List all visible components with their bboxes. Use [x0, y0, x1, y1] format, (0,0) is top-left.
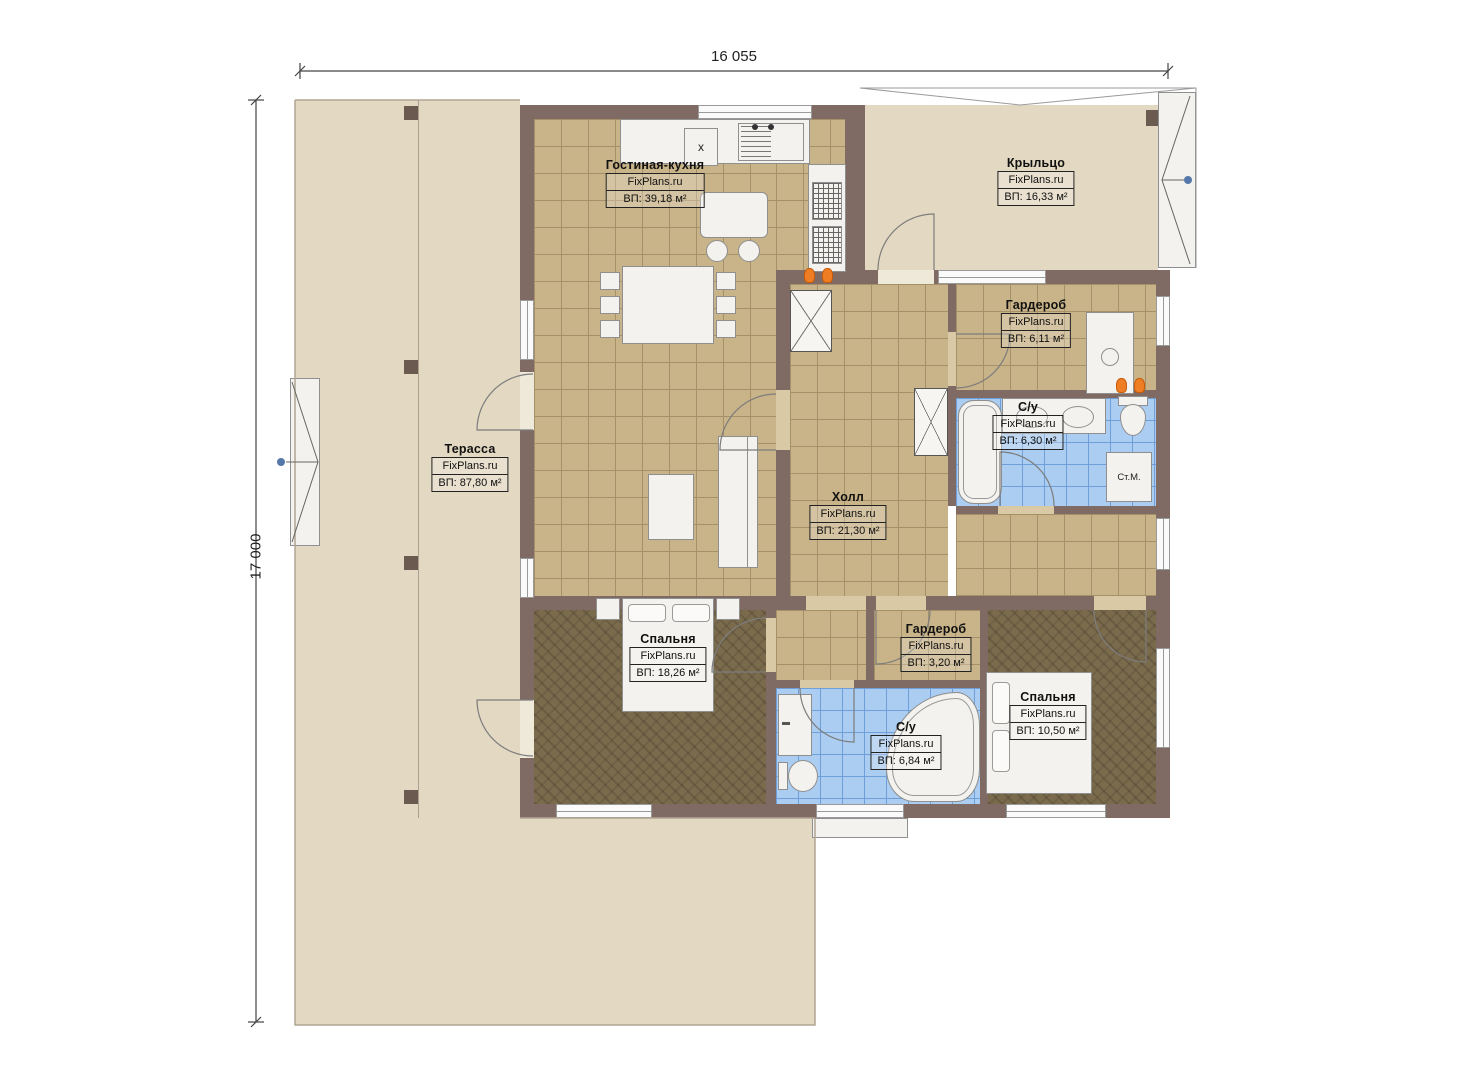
- door-arcs: [477, 214, 1146, 756]
- room-name: С/у: [870, 720, 941, 734]
- door-arc: [878, 214, 934, 270]
- room-area: ВП: 39,18 м²: [607, 191, 704, 207]
- door-arc: [712, 618, 766, 672]
- room-name: Спальня: [1009, 690, 1086, 704]
- fridge-mark: x: [698, 140, 704, 154]
- room-area: ВП: 6,84 м²: [871, 753, 940, 769]
- room-label-bedroom-right: Спальня FixPlans.ru ВП: 10,50 м²: [1009, 690, 1086, 740]
- door-arc: [1000, 452, 1054, 506]
- room-area: ВП: 6,11 м²: [1002, 331, 1070, 347]
- room-name: Спальня: [629, 632, 706, 646]
- room-name: Гостиная-кухня: [606, 158, 705, 172]
- room-name: Терасса: [431, 442, 508, 456]
- room-label-terrace: Терасса FixPlans.ru ВП: 87,80 м²: [431, 442, 508, 492]
- room-area: ВП: 21,30 м²: [810, 523, 885, 539]
- door-arc: [720, 394, 776, 450]
- room-brand: FixPlans.ru: [432, 458, 507, 475]
- room-area: ВП: 87,80 м²: [432, 475, 507, 491]
- room-name: Гардероб: [900, 622, 971, 636]
- room-area: ВП: 10,50 м²: [1010, 723, 1085, 739]
- room-name: Крыльцо: [997, 156, 1074, 170]
- room-name: Холл: [809, 490, 886, 504]
- door-arc: [477, 700, 533, 756]
- room-label-wardrobe-small: Гардероб FixPlans.ru ВП: 3,20 м²: [900, 622, 971, 672]
- washing-machine-label: Ст.М.: [1117, 472, 1140, 483]
- room-brand: FixPlans.ru: [993, 416, 1062, 433]
- washing-machine: Ст.М.: [1106, 452, 1152, 502]
- line-work: [0, 0, 1474, 1080]
- room-label-bedroom-left: Спальня FixPlans.ru ВП: 18,26 м²: [629, 632, 706, 682]
- room-brand: FixPlans.ru: [810, 506, 885, 523]
- dimension-width-label: 16 055: [684, 48, 784, 65]
- room-brand: FixPlans.ru: [607, 174, 704, 191]
- marker-dot: [277, 458, 285, 466]
- door-arc: [477, 374, 533, 430]
- terrace-outline: [295, 100, 815, 1025]
- room-area: ВП: 16,33 м²: [998, 189, 1073, 205]
- floor-plan: x Ст.М.: [0, 0, 1474, 1080]
- door-arc: [800, 688, 854, 742]
- dimension-line-top: [295, 63, 1173, 79]
- room-brand: FixPlans.ru: [901, 638, 970, 655]
- room-brand: FixPlans.ru: [1010, 706, 1085, 723]
- terrace-steps-marker: [286, 382, 318, 542]
- room-area: ВП: 6,30 м²: [993, 433, 1062, 449]
- room-label-porch: Крыльцо FixPlans.ru ВП: 16,33 м²: [997, 156, 1074, 206]
- room-name: Гардероб: [1001, 298, 1071, 312]
- room-label-bathroom-bottom: С/у FixPlans.ru ВП: 6,84 м²: [870, 720, 941, 770]
- room-brand: FixPlans.ru: [998, 172, 1073, 189]
- room-brand: FixPlans.ru: [630, 648, 705, 665]
- room-brand: FixPlans.ru: [1002, 314, 1070, 331]
- room-name: С/у: [992, 400, 1063, 414]
- marker-dot: [1184, 176, 1192, 184]
- room-label-living-kitchen: Гостиная-кухня FixPlans.ru ВП: 39,18 м²: [606, 158, 705, 208]
- dimension-height-label: 17 000: [248, 507, 265, 607]
- room-brand: FixPlans.ru: [871, 736, 940, 753]
- room-label-wardrobe-top: Гардероб FixPlans.ru ВП: 6,11 м²: [1001, 298, 1071, 348]
- door-arc: [1094, 610, 1146, 662]
- room-area: ВП: 3,20 м²: [901, 655, 970, 671]
- room-label-bathroom-top: С/у FixPlans.ru ВП: 6,30 м²: [992, 400, 1063, 450]
- room-area: ВП: 18,26 м²: [630, 665, 705, 681]
- room-label-hall: Холл FixPlans.ru ВП: 21,30 м²: [809, 490, 886, 540]
